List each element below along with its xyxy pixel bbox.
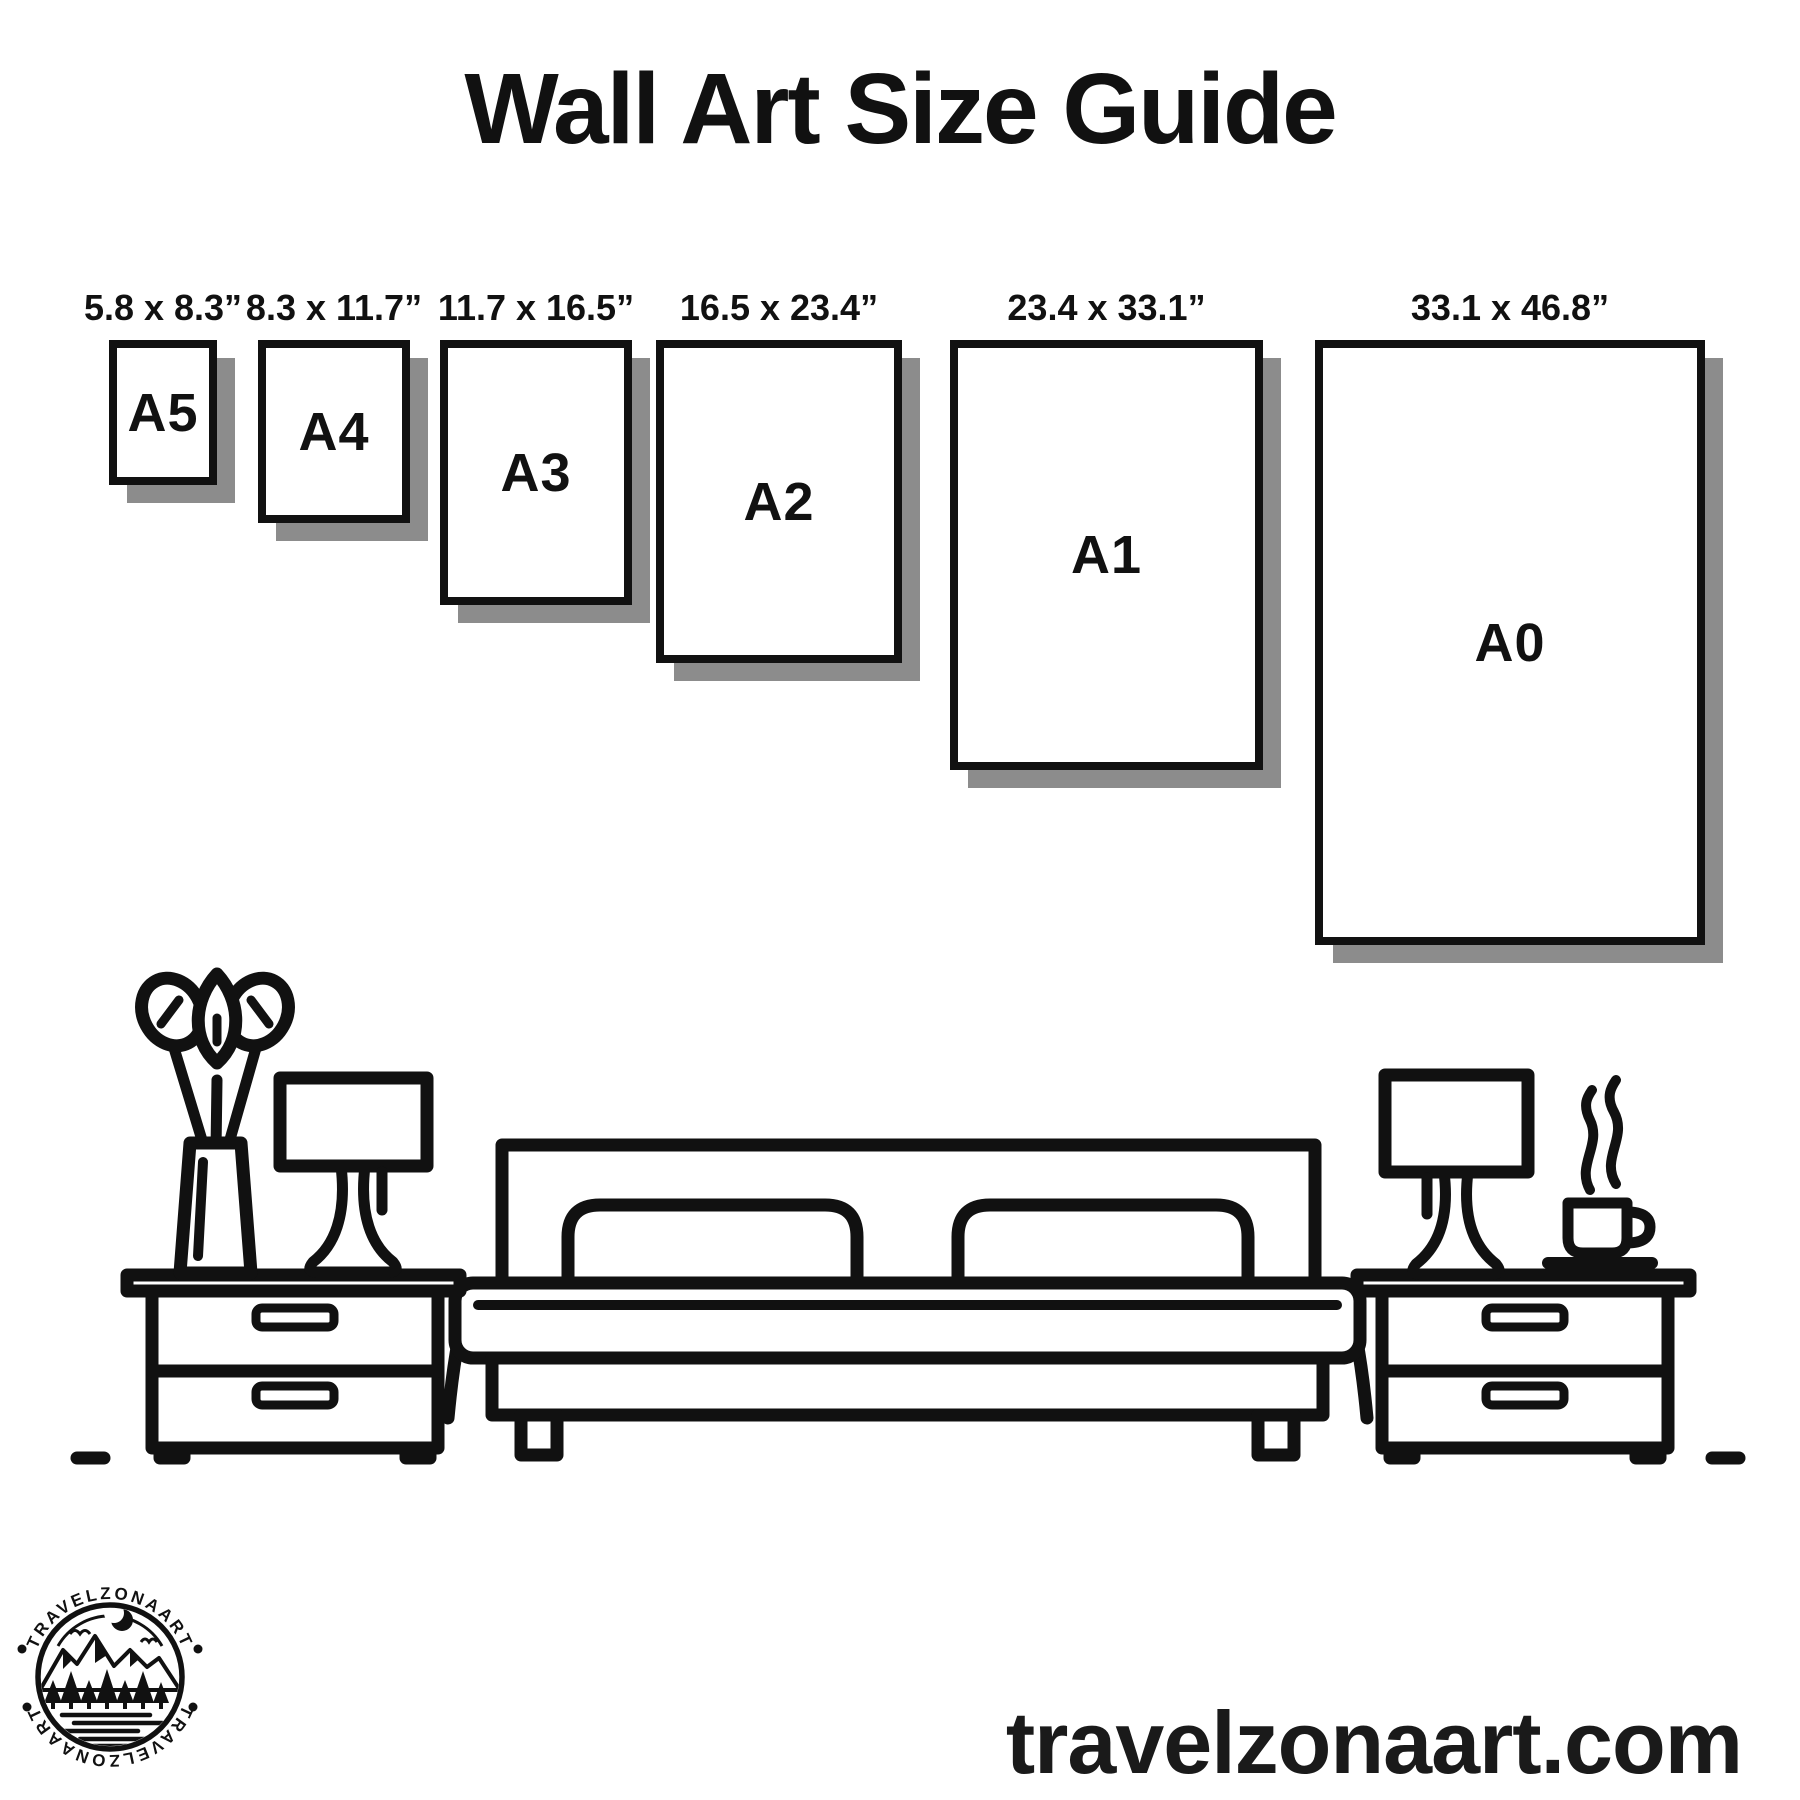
brand-logo: TRAVELZONAART TRAVELZONAART bbox=[18, 1584, 203, 1770]
bed-icon bbox=[448, 1145, 1367, 1455]
table-lamp-icon bbox=[280, 1078, 427, 1272]
bedroom-illustration: TRAVELZONAART TRAVELZONAART bbox=[0, 0, 1800, 1800]
coffee-cup-icon bbox=[1548, 1080, 1652, 1263]
wall-art-size-guide: Wall Art Size Guide 5.8 x 8.3” 8.3 x 11.… bbox=[0, 0, 1800, 1800]
website-url: travelzonaart.com bbox=[1006, 1692, 1742, 1794]
nightstand-icon bbox=[127, 1275, 460, 1458]
table-lamp-icon bbox=[1385, 1075, 1528, 1274]
nightstand-icon bbox=[1357, 1275, 1690, 1458]
